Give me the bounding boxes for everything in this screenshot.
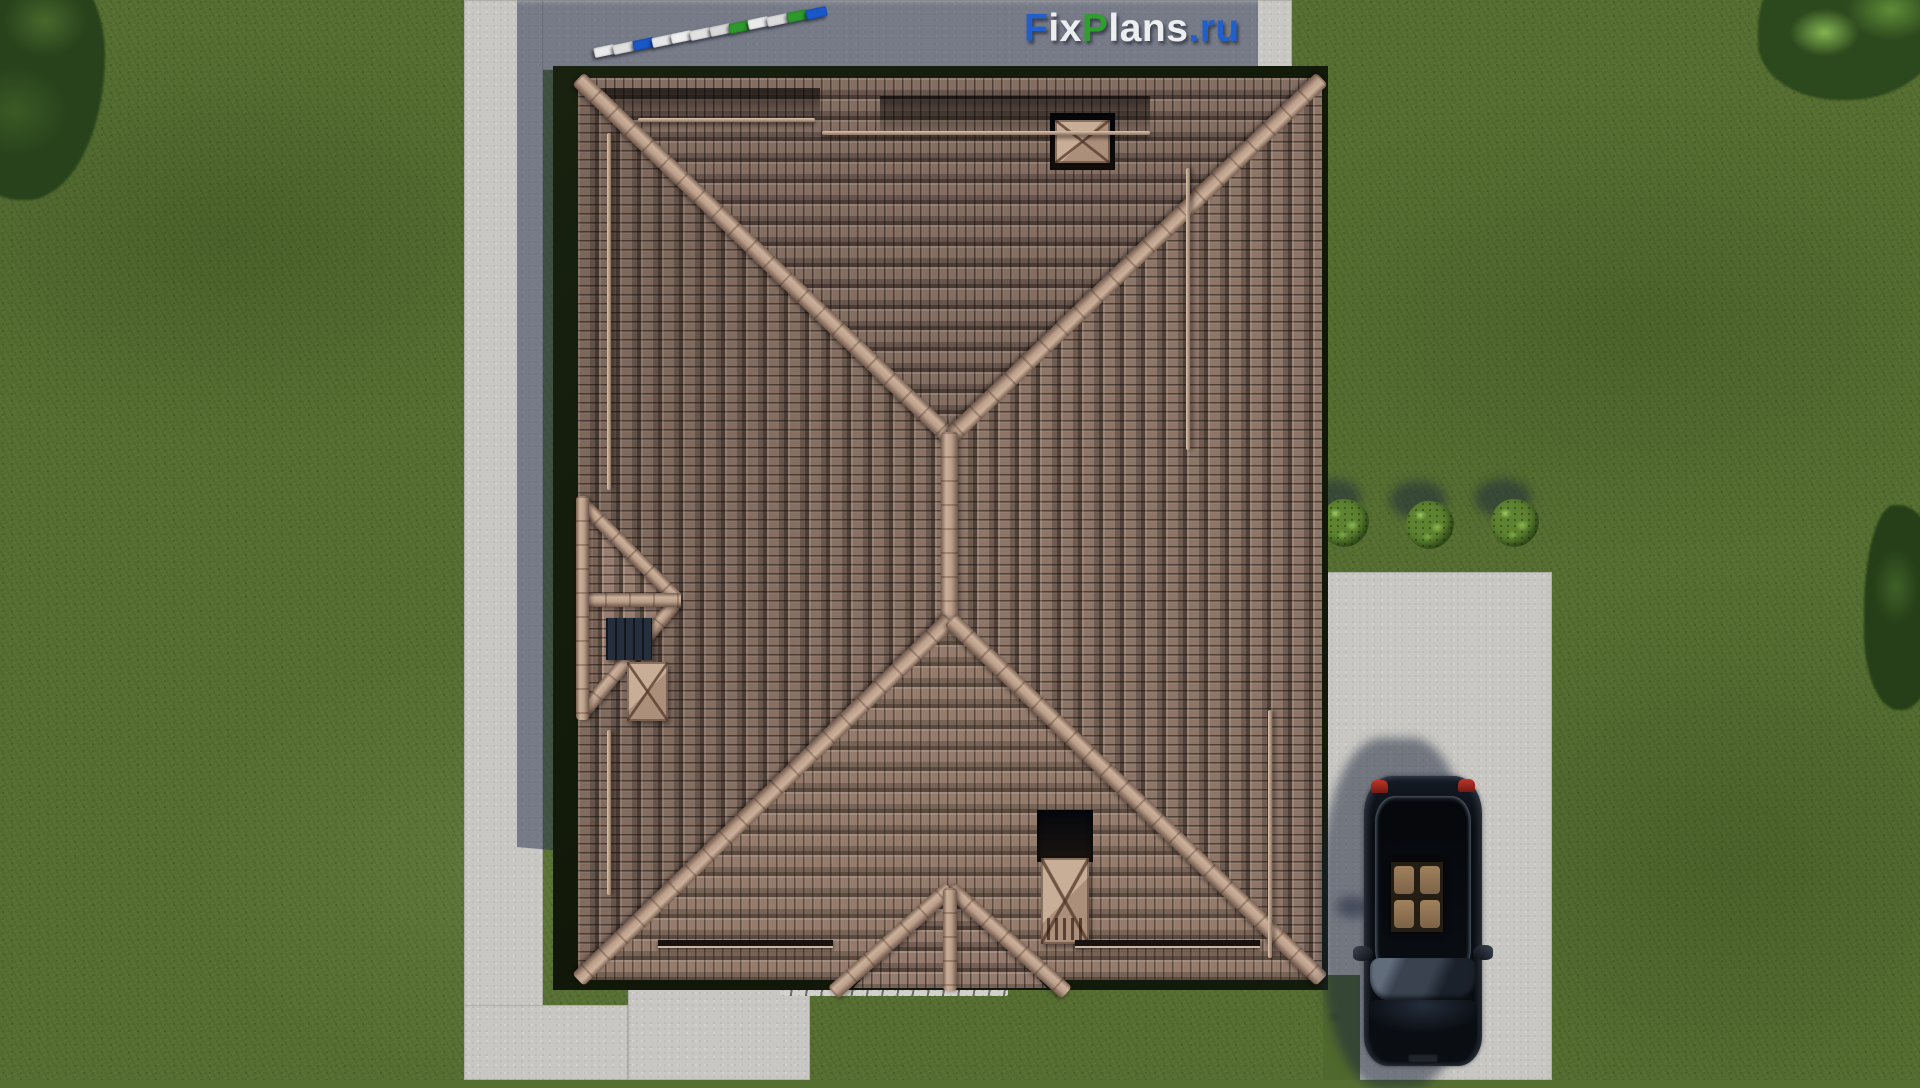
snow-guard-east-lower xyxy=(1268,710,1272,958)
watermark-segment: lans xyxy=(1108,7,1188,51)
watermark-segment: F xyxy=(1024,7,1048,51)
snow-guard-north-left xyxy=(638,118,815,122)
car-mirror-left xyxy=(1353,946,1373,961)
south-chimney-louvers xyxy=(1047,918,1083,940)
car-taillight-left xyxy=(1371,780,1388,793)
car-interior-view xyxy=(1391,862,1443,932)
snow-guard-south-right xyxy=(1075,940,1260,948)
car-mirror-right xyxy=(1473,945,1493,960)
car-license-plate xyxy=(1408,1054,1438,1063)
main-ridge-vertical xyxy=(941,432,958,624)
car-seat xyxy=(1394,900,1414,928)
snow-guard-south-left xyxy=(658,940,833,948)
tree-canopy-right-edge xyxy=(1864,505,1920,710)
bay-chimney-cap xyxy=(627,662,668,721)
car-seat xyxy=(1420,866,1440,894)
bay-vent-window xyxy=(606,618,652,660)
fixplans-watermark: FixPlans.ru xyxy=(1024,6,1240,52)
watermark-segment: P xyxy=(1082,7,1109,51)
car-top-view xyxy=(1358,770,1488,1070)
south-chimney-opening xyxy=(1037,810,1093,862)
north-chimney-cap xyxy=(1055,120,1110,163)
car-hood xyxy=(1369,1000,1477,1060)
aerial-render-canvas: { "watermark": { "text": "FixPlans.ru", … xyxy=(0,0,1920,1080)
southwest-walkway xyxy=(464,1005,628,1080)
car-seat xyxy=(1394,866,1414,894)
bay-ridge-base xyxy=(576,496,589,720)
car-seat xyxy=(1420,900,1440,928)
snow-guard-east-upper xyxy=(1186,168,1190,450)
car-windshield xyxy=(1370,958,1476,1000)
snow-guard-north-right xyxy=(822,131,1150,135)
gable-ridge-vertical xyxy=(943,888,957,991)
house-roof xyxy=(553,66,1328,1006)
snow-guard-west-upper xyxy=(607,133,611,490)
car-taillight-right xyxy=(1458,779,1475,792)
bay-ridge-horizontal xyxy=(581,593,681,607)
watermark-segment: ix xyxy=(1048,7,1082,51)
watermark-segment: .ru xyxy=(1188,7,1239,51)
snow-guard-west-lower xyxy=(607,730,611,895)
